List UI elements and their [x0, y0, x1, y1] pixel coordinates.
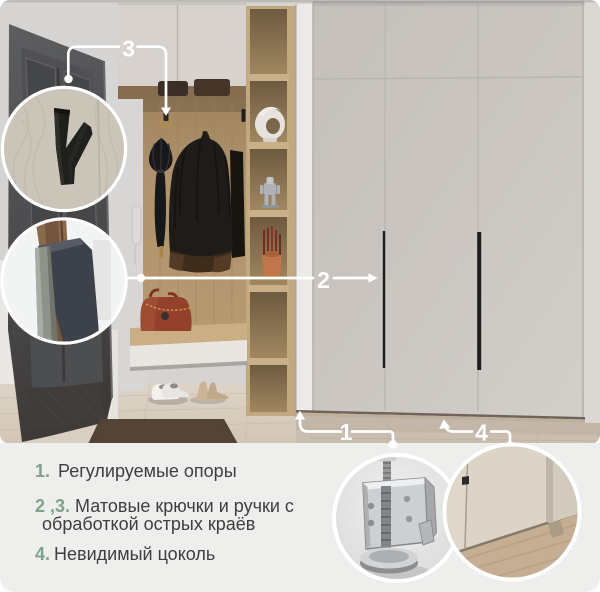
svg-text:4. Невидимый цоколь: 4. Невидимый цоколь: [35, 544, 215, 564]
svg-text:2 ,3. Матовые крючки и ручки с: 2 ,3. Матовые крючки и ручки с: [35, 496, 294, 516]
svg-text:3: 3: [122, 36, 135, 62]
svg-text:1: 1: [340, 419, 353, 445]
svg-text:1. Регулируемые опоры: 1. Регулируемые опоры: [35, 461, 237, 481]
svg-text:обработкой острых краёв: обработкой острых краёв: [42, 514, 255, 534]
svg-text:2: 2: [317, 267, 330, 293]
svg-text:4: 4: [475, 420, 488, 446]
